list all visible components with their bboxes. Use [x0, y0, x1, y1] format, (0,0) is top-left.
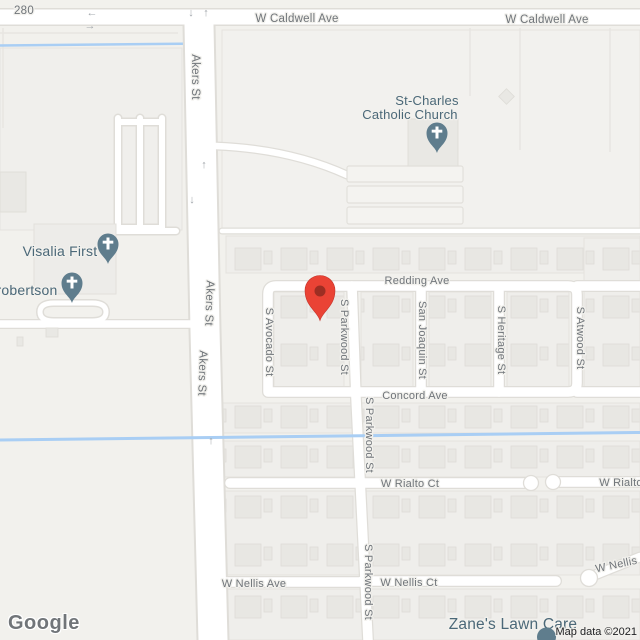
map-attribution: Map data ©2021 — [556, 626, 638, 638]
cross-icon — [103, 241, 114, 244]
arrow-down-icon: ↓ — [189, 194, 195, 206]
parking-strips — [347, 166, 463, 224]
map-canvas[interactable]: ← → ↓ ↑ ↑ ↓ ↑ 280 W Caldwell Ave W Caldw… — [0, 0, 640, 640]
street-label-rialto-ct: W Rialto Ct — [381, 478, 439, 490]
arrow-down-icon: ↓ — [188, 7, 194, 19]
poi-label-st-charles-line2[interactable]: Catholic Church — [362, 107, 458, 122]
marker-pin-dot — [315, 286, 326, 297]
street-label-heritage: S Heritage St — [495, 306, 507, 375]
arrow-right-icon: → — [85, 20, 96, 32]
google-watermark: Google — [8, 612, 80, 635]
arrow-up-icon: ↑ — [201, 159, 207, 171]
street-label-caldwell-east: W Caldwell Ave — [505, 14, 588, 26]
street-label-avocado: S Avocado St — [263, 308, 275, 377]
poi-label-visalia-first[interactable]: Visalia First — [23, 243, 98, 259]
street-label-nellis-ct: W Nellis Ct — [380, 577, 437, 589]
map-svg: ← → ↓ ↑ ↑ ↓ ↑ 280 W Caldwell Ave W Caldw… — [0, 0, 640, 640]
poi-label-st-charles-line1[interactable]: St-Charles — [395, 93, 459, 108]
arrow-up-icon: ↑ — [208, 435, 214, 447]
street-label-akers-top: Akers St — [189, 54, 201, 100]
route-280-label: 280 — [14, 5, 34, 17]
arrow-up-icon: ↑ — [203, 7, 209, 19]
street-label-atwood: S Atwood St — [574, 307, 586, 370]
street-label-rialto-east: W Rialto — [599, 477, 640, 489]
street-label-concord: Concord Ave — [382, 390, 448, 402]
street-label-parkwood-north: S Parkwood St — [338, 299, 350, 375]
street-label-akers-low: Akers St — [195, 350, 209, 396]
street-label-akers-mid: Akers St — [202, 280, 216, 326]
street-label-parkwood-mid: S Parkwood St — [363, 397, 375, 473]
poi-label-robertson[interactable]: robertson — [0, 282, 57, 298]
street-label-redding: Redding Ave — [385, 275, 450, 287]
parcels-layer — [0, 28, 640, 231]
street-label-nellis-ave: W Nellis Ave — [222, 578, 287, 590]
street-label-parkwood-south: S Parkwood St — [362, 544, 374, 620]
cross-icon — [432, 130, 443, 133]
cross-icon — [67, 280, 78, 283]
street-label-caldwell-west: W Caldwell Ave — [255, 13, 338, 25]
street-label-san-joaquin: San Joaquin St — [416, 301, 428, 379]
arrow-left-icon: ← — [87, 7, 98, 19]
